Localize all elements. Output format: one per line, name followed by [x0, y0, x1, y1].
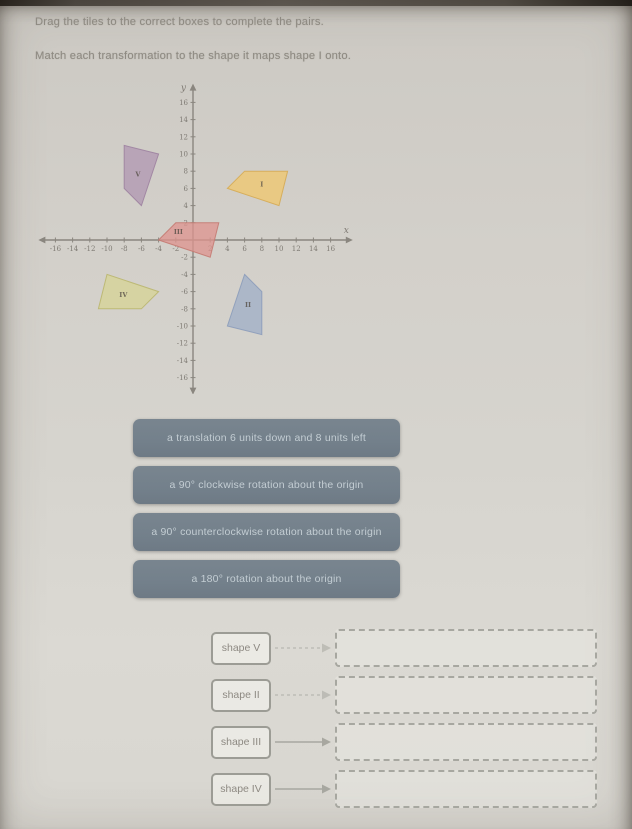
svg-text:12: 12 [179, 133, 188, 141]
svg-text:-10: -10 [177, 323, 188, 331]
shape-iv-drop-box[interactable] [335, 770, 597, 808]
photo-dark-edge [0, 0, 632, 6]
match-row-shape-iii: shape III [211, 724, 603, 760]
svg-text:16: 16 [179, 99, 188, 107]
shape-iii-drop-box[interactable] [335, 723, 597, 761]
svg-text:6: 6 [184, 185, 189, 193]
svg-text:-10: -10 [101, 245, 112, 253]
svg-text:IV: IV [119, 291, 128, 299]
svg-text:-12: -12 [84, 245, 95, 253]
svg-text:-16: -16 [177, 374, 189, 382]
instruction-secondary: Match each transformation to the shape i… [35, 50, 600, 62]
screen-photo: Drag the tiles to the correct boxes to c… [0, 0, 632, 829]
tile-translation[interactable]: a translation 6 units down and 8 units l… [133, 419, 400, 457]
svg-text:-8: -8 [121, 245, 128, 253]
svg-text:x: x [344, 226, 349, 236]
shape-iv-label: shape IV [211, 773, 271, 806]
svg-text:-4: -4 [181, 271, 188, 279]
tile-rotation-180[interactable]: a 180° rotation about the origin [133, 560, 400, 598]
svg-text:10: 10 [179, 151, 188, 159]
shape-iii-label: shape III [211, 726, 271, 759]
svg-text:-12: -12 [177, 340, 188, 348]
svg-text:y: y [180, 84, 187, 94]
svg-text:V: V [134, 170, 141, 178]
svg-text:III: III [174, 228, 183, 236]
match-row-shape-iv: shape IV [211, 771, 603, 807]
svg-text:-16: -16 [50, 245, 62, 253]
svg-text:-8: -8 [181, 305, 188, 313]
tile-rotation-90-clockwise[interactable]: a 90° clockwise rotation about the origi… [133, 466, 400, 504]
svg-text:8: 8 [184, 168, 188, 176]
shape-v-label: shape V [211, 632, 271, 665]
tile-rotation-90-counterclockwise[interactable]: a 90° counterclockwise rotation about th… [133, 513, 400, 551]
tile-list: a translation 6 units down and 8 units l… [133, 419, 400, 607]
shape-ii-label: shape II [211, 679, 271, 712]
svg-text:-14: -14 [177, 357, 189, 365]
match-row-shape-ii: shape II [211, 677, 603, 713]
shape-v-drop-box[interactable] [335, 629, 597, 667]
svg-text:-6: -6 [181, 288, 188, 296]
arrow-icon [273, 689, 333, 701]
svg-text:-6: -6 [138, 245, 145, 253]
svg-text:4: 4 [184, 202, 189, 210]
shape-ii-drop-box[interactable] [335, 676, 597, 714]
svg-text:8: 8 [260, 245, 264, 253]
arrow-icon [273, 736, 333, 748]
svg-text:4: 4 [225, 245, 230, 253]
svg-text:16: 16 [326, 245, 335, 253]
svg-text:I: I [260, 181, 263, 189]
svg-text:14: 14 [309, 245, 318, 253]
arrow-icon [273, 642, 333, 654]
match-area: shape V shape II shape III shape IV [211, 630, 603, 818]
svg-text:12: 12 [292, 245, 301, 253]
svg-text:10: 10 [275, 245, 284, 253]
svg-text:-4: -4 [155, 245, 162, 253]
coordinate-plane: -16-14-12-10-8-6-4-2246810121416-16-14-1… [30, 78, 370, 394]
instruction-primary: Drag the tiles to the correct boxes to c… [35, 16, 600, 28]
svg-text:-2: -2 [181, 254, 188, 262]
match-row-shape-v: shape V [211, 630, 603, 666]
svg-text:-14: -14 [67, 245, 79, 253]
svg-text:14: 14 [179, 116, 188, 124]
svg-text:6: 6 [242, 245, 247, 253]
arrow-icon [273, 783, 333, 795]
svg-text:II: II [245, 301, 251, 309]
